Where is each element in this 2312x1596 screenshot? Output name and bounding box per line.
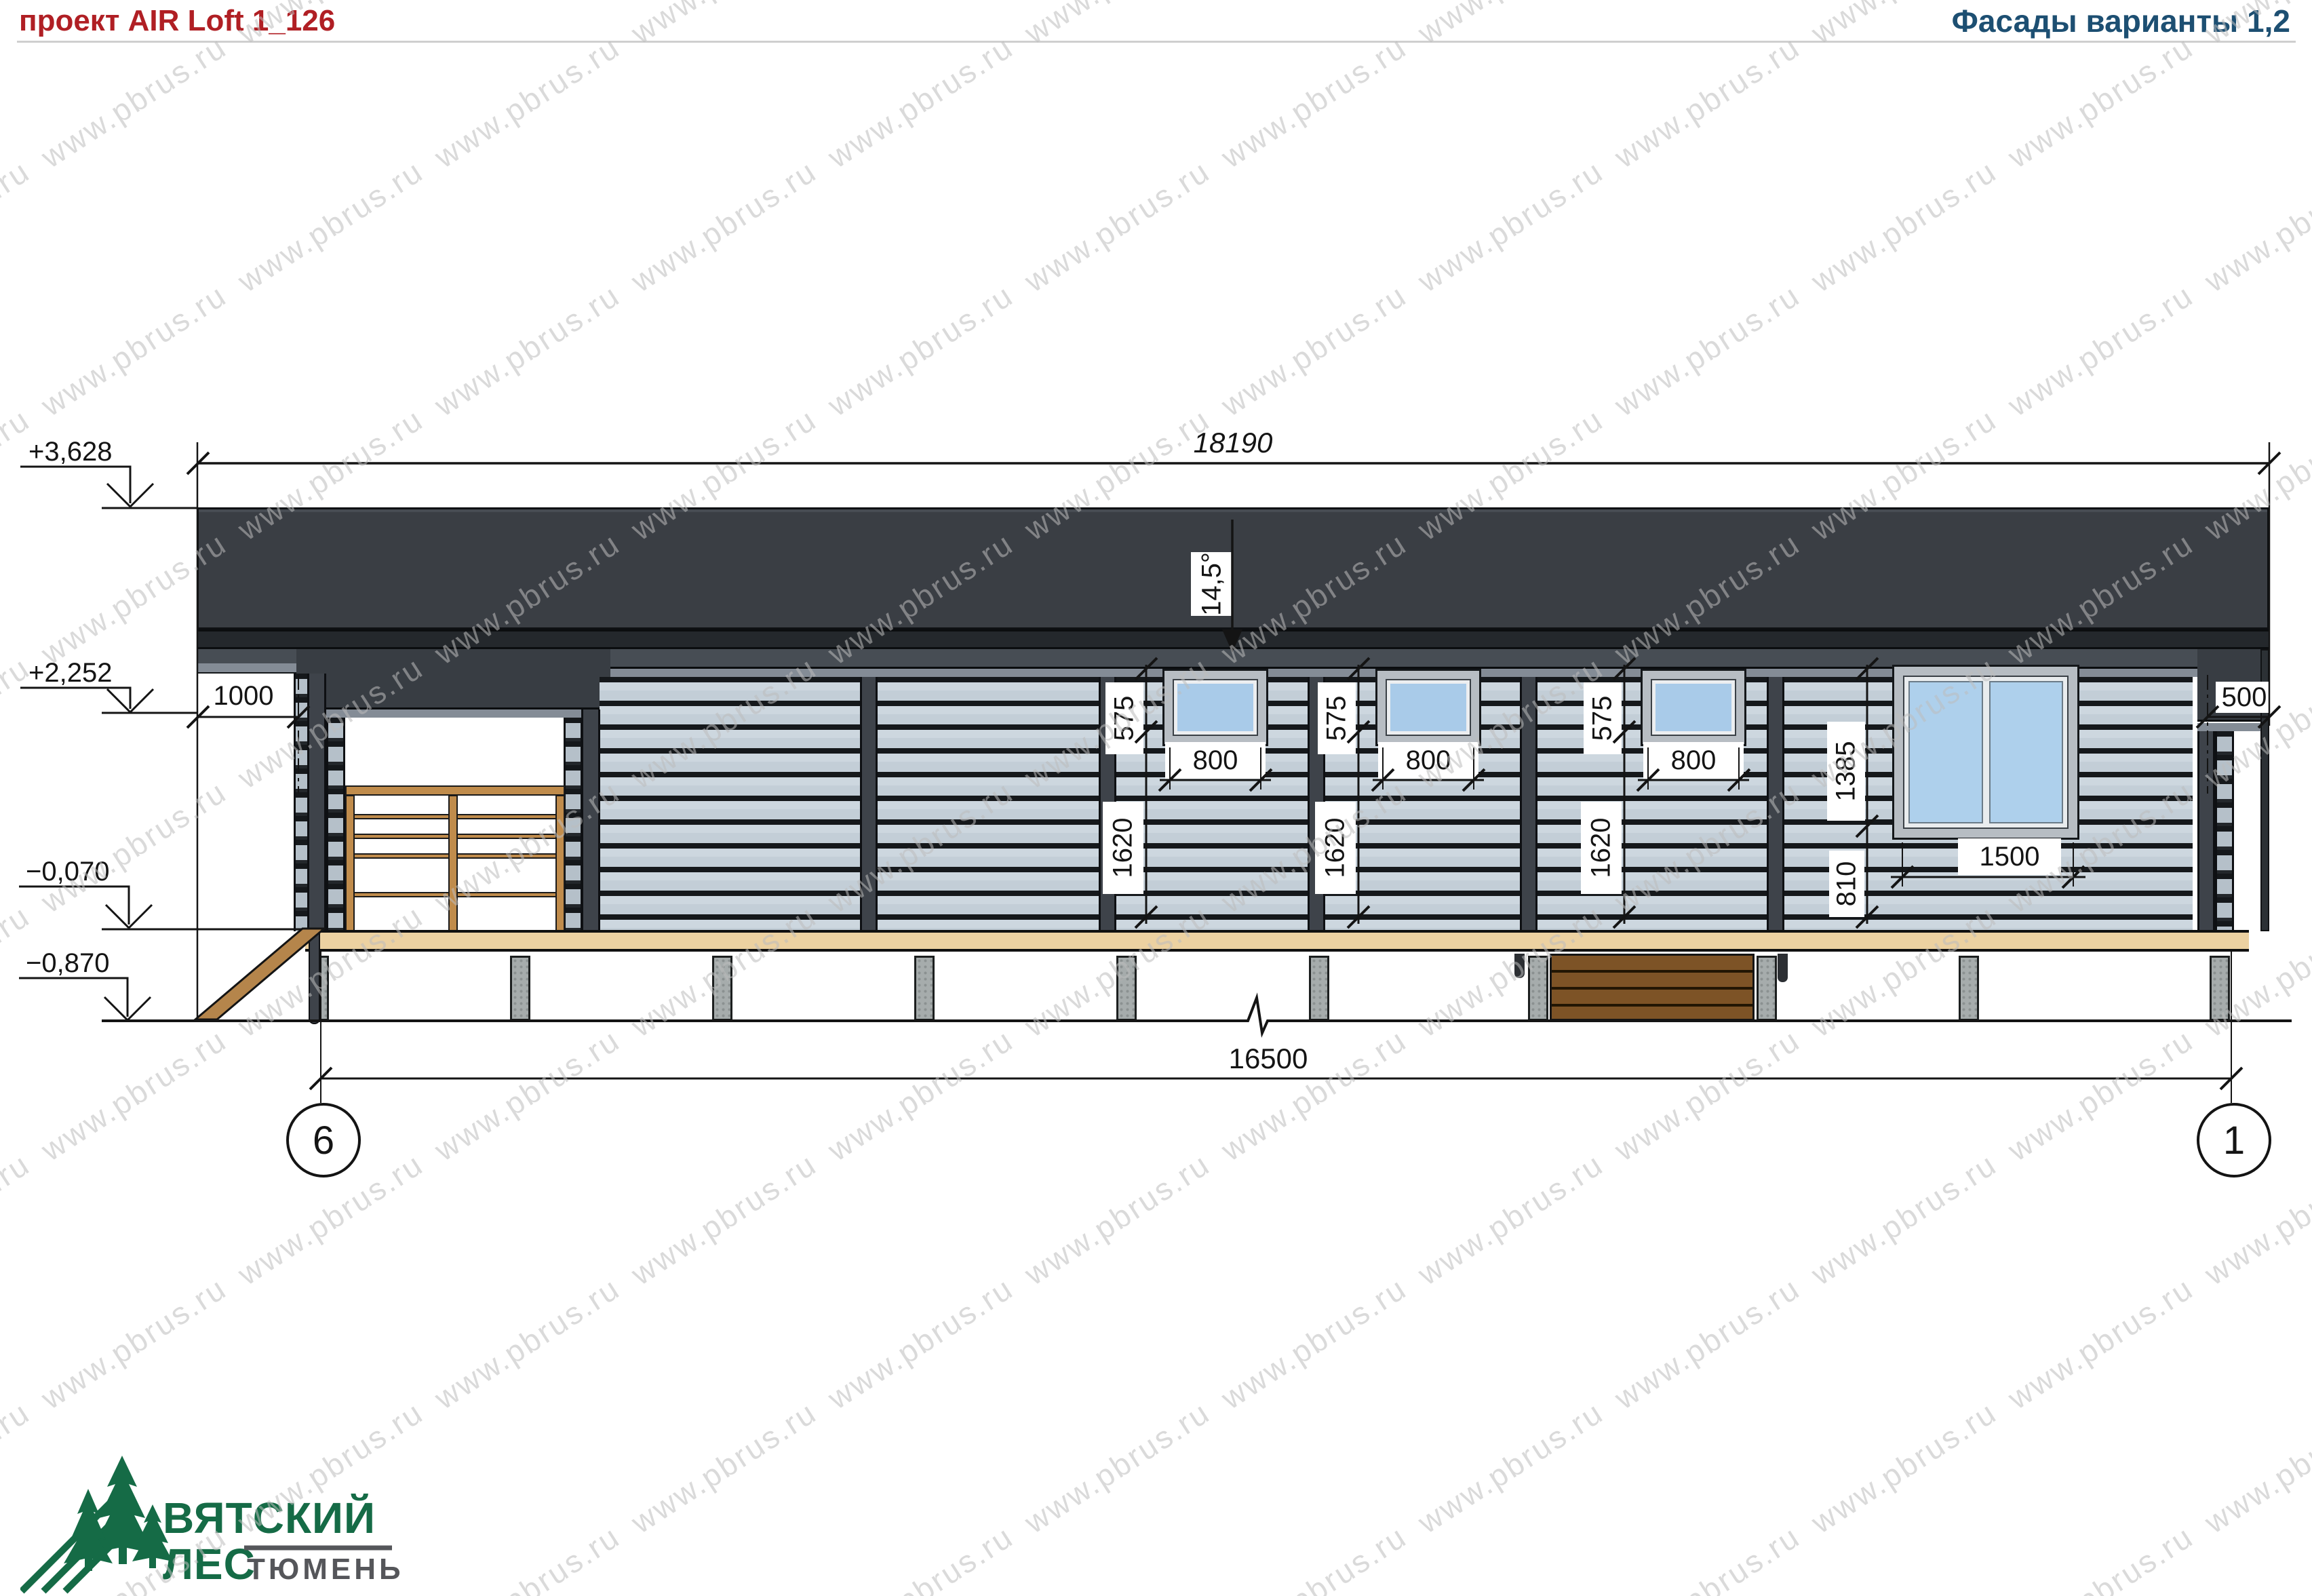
access-ramp (195, 929, 324, 1019)
dimension-lines-layer (0, 0, 2312, 1596)
slope-arrowhead (1222, 629, 1242, 653)
drawing-sheet: проект AIR Loft 1_126 Фасады варианты 1,… (0, 0, 2312, 1596)
